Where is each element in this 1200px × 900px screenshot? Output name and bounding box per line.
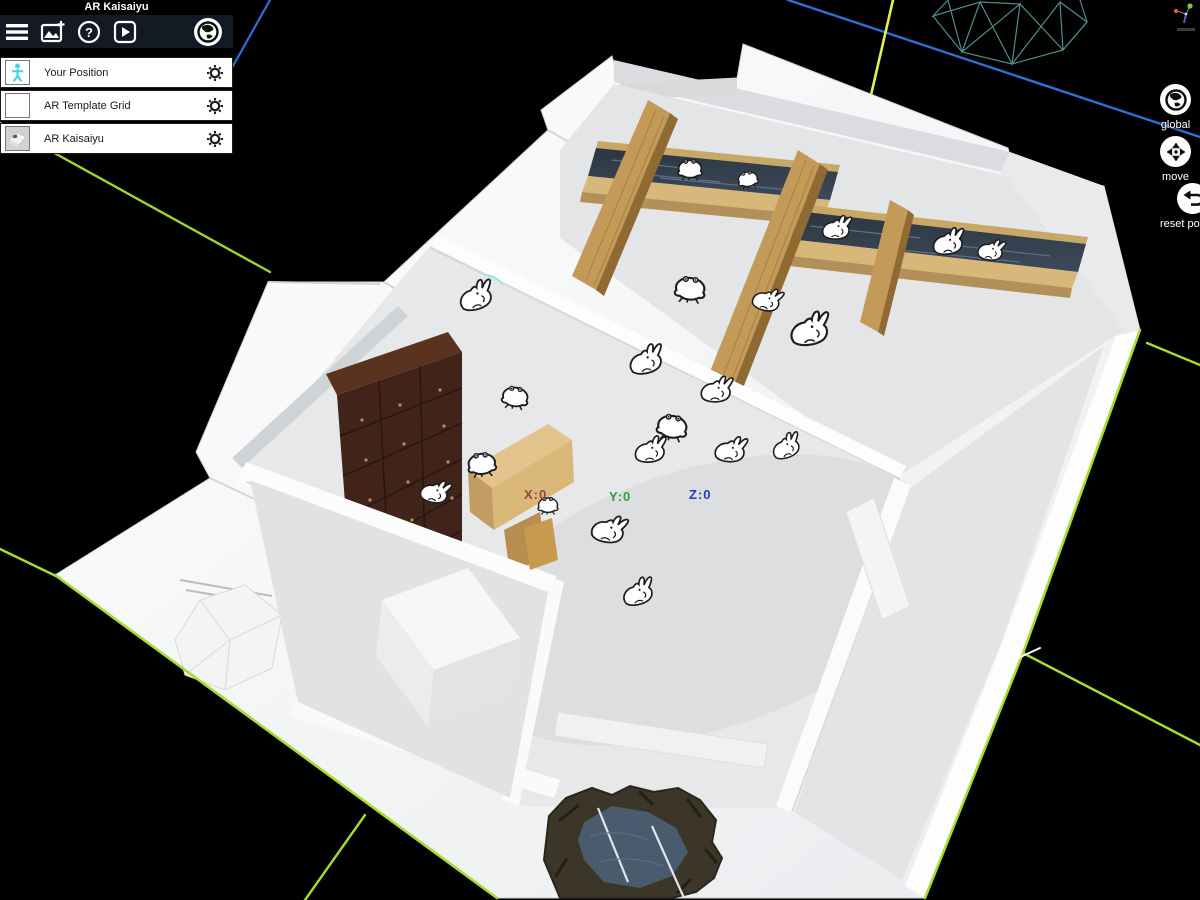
undo-arrow-icon [1181, 187, 1200, 211]
globe-icon [193, 17, 223, 47]
layer-settings-button[interactable] [204, 95, 226, 117]
gear-icon [205, 96, 225, 116]
menu-button[interactable] [2, 17, 32, 47]
layer-row-ar-kaisaiyu[interactable]: AR Kaisaiyu [0, 123, 233, 154]
globe-button[interactable] [193, 17, 223, 47]
model-thumbnail [5, 126, 30, 151]
globe-icon [1163, 87, 1189, 113]
window-title: AR Kaisaiyu [0, 0, 233, 15]
main-toolbar: ? [0, 15, 233, 48]
reset-position-label: reset position [1160, 218, 1200, 230]
ar-editor-app: X:0 Y:0 Z:0 AR Kaisaiyu ? [0, 0, 1200, 900]
axis-readout-z: Z:0 [689, 487, 712, 502]
gear-icon [205, 129, 225, 149]
reset-position-button[interactable]: reset position [1160, 183, 1200, 230]
axis-readout-x: X:0 [524, 487, 547, 502]
play-icon [113, 20, 137, 44]
layer-label: Your Position [44, 67, 204, 79]
add-image-icon [40, 20, 66, 44]
menu-icon [5, 22, 29, 42]
global-mode-button[interactable]: global [1160, 84, 1191, 131]
global-mode-label: global [1161, 119, 1190, 131]
layer-settings-button[interactable] [204, 128, 226, 150]
move-mode-label: move [1162, 171, 1189, 183]
axis-readout-y: Y:0 [609, 489, 631, 504]
help-icon: ? [77, 20, 101, 44]
svg-text:?: ? [85, 25, 93, 40]
rock-pond [544, 786, 722, 898]
layer-label: AR Kaisaiyu [44, 133, 204, 145]
model-preview-icon [6, 127, 29, 150]
help-button[interactable]: ? [74, 17, 104, 47]
gear-icon [205, 63, 225, 83]
move-mode-button[interactable]: move [1160, 136, 1191, 183]
layer-label: AR Template Grid [44, 100, 204, 112]
play-button[interactable] [110, 17, 140, 47]
layer-row-your-position[interactable]: Your Position [0, 57, 233, 88]
person-thumbnail [5, 60, 30, 85]
move-arrows-icon [1164, 140, 1188, 164]
person-figure-icon [7, 62, 28, 83]
layer-row-ar-template-grid[interactable]: AR Template Grid [0, 90, 233, 121]
layer-settings-button[interactable] [204, 62, 226, 84]
blank-thumbnail [5, 93, 30, 118]
add-image-button[interactable] [38, 17, 68, 47]
